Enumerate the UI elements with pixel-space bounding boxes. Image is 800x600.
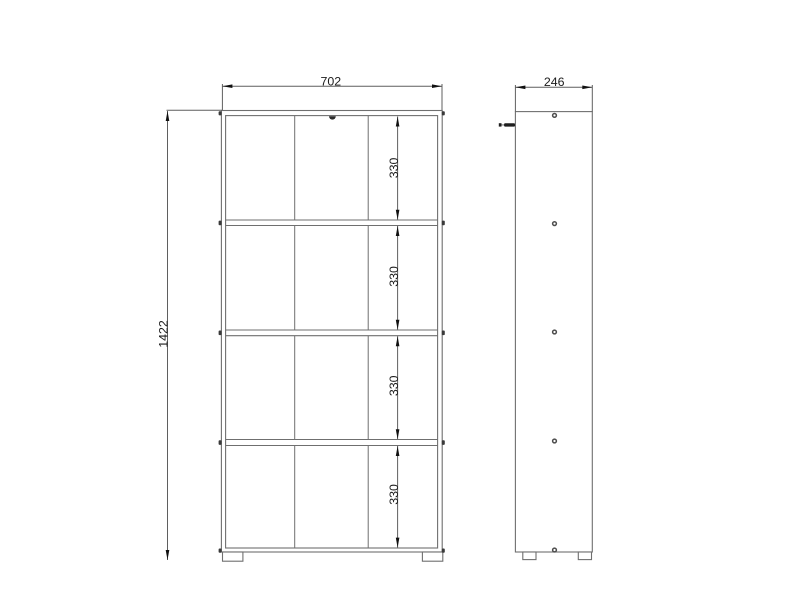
svg-text:702: 702 <box>320 74 341 88</box>
svg-text:330: 330 <box>387 484 401 505</box>
svg-text:330: 330 <box>387 375 401 396</box>
svg-text:246: 246 <box>544 75 565 89</box>
svg-text:330: 330 <box>387 266 401 287</box>
svg-text:1422: 1422 <box>156 320 170 348</box>
svg-text:330: 330 <box>387 157 401 178</box>
